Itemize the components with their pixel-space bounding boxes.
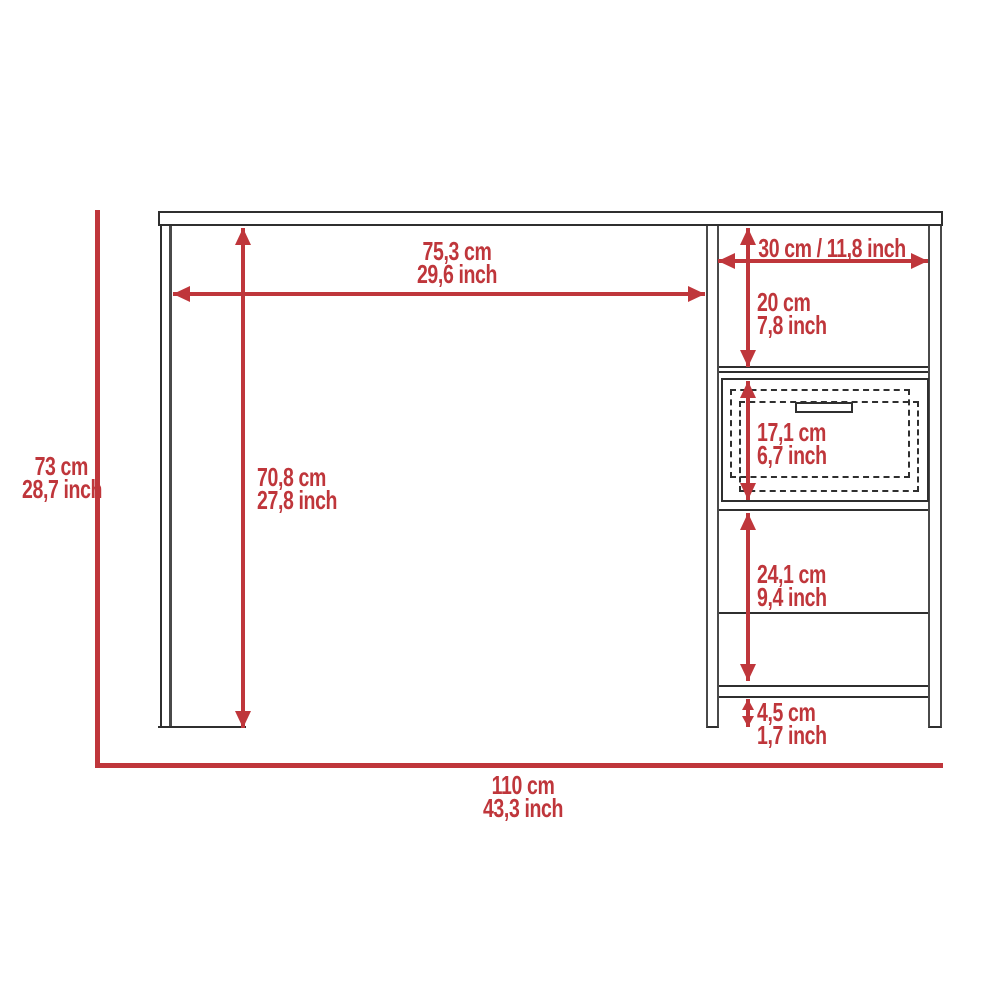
drawer-handle-slot	[795, 402, 853, 413]
desktop-width-arrow	[173, 292, 705, 296]
desk-dimension-diagram: 75,3 cm 29,6 inch 30 cm / 11,8 inch 20 c…	[0, 0, 1000, 1000]
lower-compartment-inch: 9,4 inch	[757, 586, 827, 609]
underdesk-height-inch: 27,8 inch	[257, 489, 337, 512]
side-unit-width-text: 30 cm / 11,8 inch	[757, 237, 907, 260]
top-compartment-height-label: 20 cm 7,8 inch	[757, 291, 827, 337]
base-clearance-label: 4,5 cm 1,7 inch	[757, 701, 827, 747]
desktop-width-inch: 29,6 inch	[382, 263, 532, 286]
overall-width-extension-line	[95, 763, 943, 768]
overall-height-inch: 28,7 inch	[22, 478, 88, 501]
drawer-height-arrow	[746, 381, 750, 500]
left-panel-outer-line	[160, 226, 162, 728]
side-unit-shelf-middle	[719, 612, 928, 614]
overall-width-label: 110 cm 43,3 inch	[448, 774, 598, 820]
underdesk-height-label: 70,8 cm 27,8 inch	[257, 466, 337, 512]
overall-width-inch: 43,3 inch	[448, 797, 598, 820]
top-compartment-inch: 7,8 inch	[757, 314, 827, 337]
left-panel-bottom-edge	[158, 726, 246, 728]
lower-compartment-height-arrow	[746, 513, 750, 681]
side-unit-left-wall	[706, 226, 719, 728]
underdesk-height-arrow	[241, 228, 245, 728]
base-clearance-arrow	[746, 699, 750, 727]
top-compartment-height-arrow	[746, 228, 750, 367]
side-unit-width-label: 30 cm / 11,8 inch	[757, 237, 907, 260]
side-unit-shelf-top	[719, 366, 928, 373]
lower-compartment-height-label: 24,1 cm 9,4 inch	[757, 563, 827, 609]
drawer-height-inch: 6,7 inch	[757, 444, 827, 467]
desk-top-panel	[158, 211, 943, 226]
drawer-height-label: 17,1 cm 6,7 inch	[757, 421, 827, 467]
base-clearance-inch: 1,7 inch	[757, 724, 827, 747]
overall-height-label: 73 cm 28,7 inch	[22, 455, 88, 501]
side-unit-right-wall	[928, 226, 942, 728]
left-panel-inner-line	[169, 226, 172, 728]
side-unit-shelf-bottom	[719, 685, 928, 698]
desktop-width-label: 75,3 cm 29,6 inch	[382, 240, 532, 286]
side-unit-shelf-under-drawer	[719, 509, 928, 511]
